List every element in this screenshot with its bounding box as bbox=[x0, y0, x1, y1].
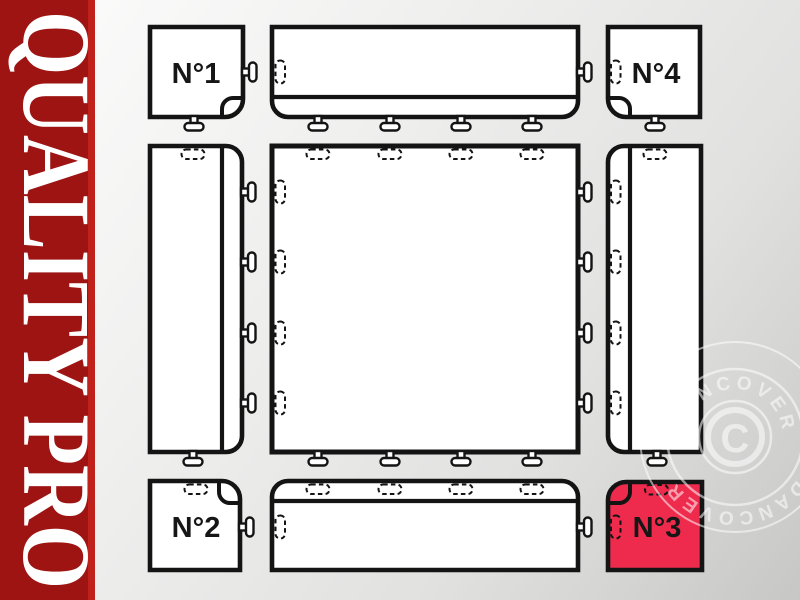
copyright-icon-letter: C bbox=[721, 417, 750, 461]
tile-corner-2: N°2 bbox=[150, 481, 254, 570]
tile-corner-4: N°4 bbox=[608, 27, 700, 131]
tile-corner-4-label: N°4 bbox=[632, 58, 681, 90]
tile-edge-top bbox=[272, 27, 592, 131]
tile-assembly: N°1 N°4 bbox=[150, 27, 702, 570]
quality-pro-banner: QUALITY PRO bbox=[0, 0, 110, 600]
tile-center-outline bbox=[272, 146, 578, 452]
tile-edge-left bbox=[150, 146, 256, 466]
tile-edge-left-outline bbox=[150, 146, 242, 452]
tile-edge-bottom bbox=[272, 481, 592, 570]
tile-corner-1-label: N°1 bbox=[172, 58, 221, 90]
tile-corner-2-label: N°2 bbox=[172, 512, 221, 544]
product-image: QUALITY PRO N°1 N°4 bbox=[0, 0, 800, 600]
tile-edge-top-outline bbox=[272, 27, 578, 117]
floor-tile-diagram: QUALITY PRO N°1 N°4 bbox=[0, 0, 800, 600]
tile-corner-3-label: N°3 bbox=[633, 512, 682, 544]
tile-center bbox=[272, 146, 592, 466]
quality-pro-banner-text: QUALITY PRO bbox=[3, 11, 110, 589]
